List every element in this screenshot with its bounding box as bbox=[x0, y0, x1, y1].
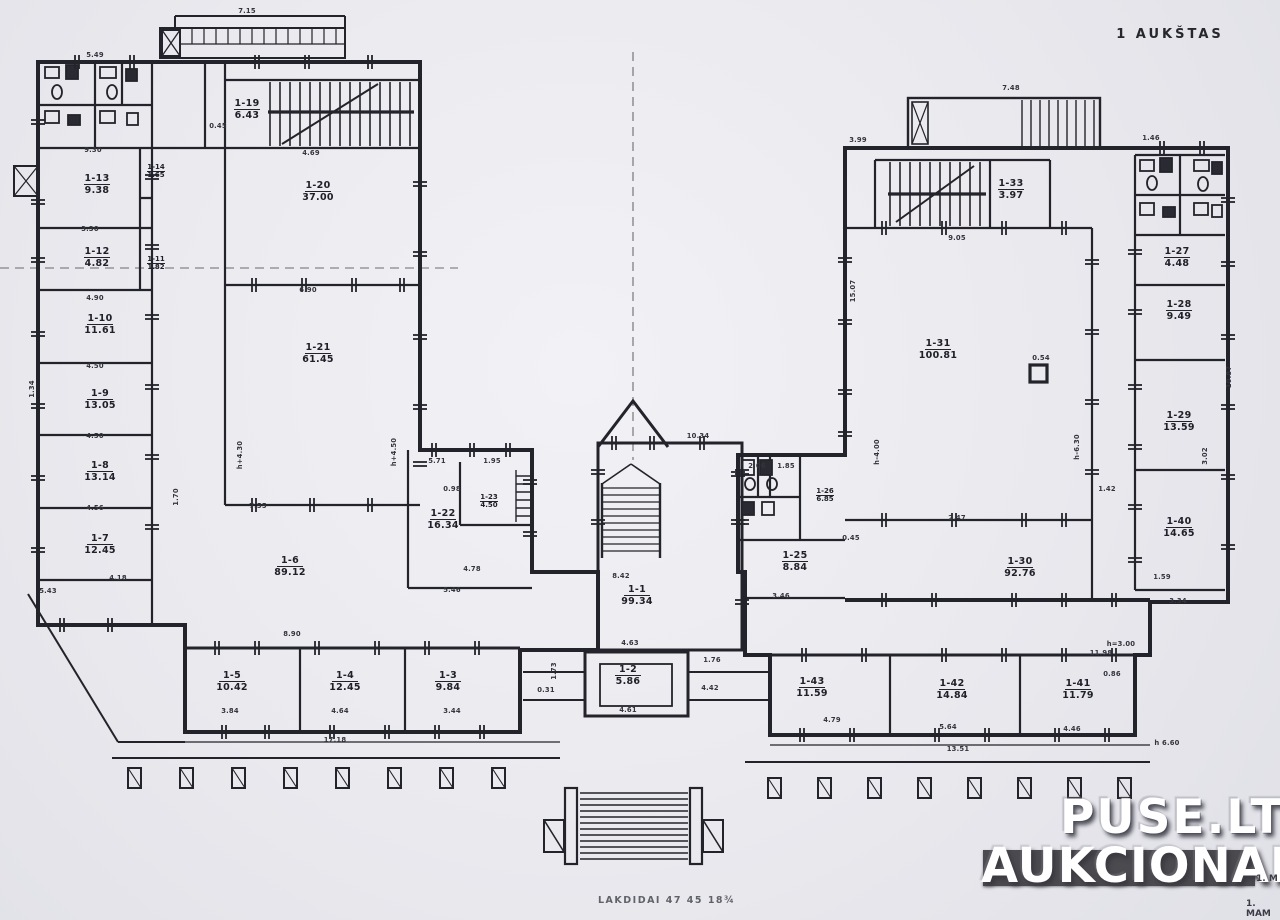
svg-text:37.00: 37.00 bbox=[302, 192, 334, 203]
svg-text:1-43: 1-43 bbox=[800, 676, 825, 687]
svg-text:1.65: 1.65 bbox=[147, 171, 164, 179]
hall-staircase bbox=[602, 464, 660, 558]
svg-text:1-9: 1-9 bbox=[91, 388, 109, 399]
dim-label: 15.07 bbox=[849, 280, 857, 303]
dim-label: 0.86 bbox=[1103, 670, 1121, 678]
svg-text:99.34: 99.34 bbox=[621, 596, 653, 607]
room-label: 1-412.45 bbox=[329, 670, 361, 693]
balcony-top-left bbox=[160, 16, 345, 58]
dim-label: h-6.30 bbox=[1073, 434, 1081, 460]
svg-text:1-5: 1-5 bbox=[223, 670, 241, 681]
dim-label: 1.46 bbox=[1142, 134, 1160, 142]
dim-label: h+4.50 bbox=[390, 438, 398, 467]
svg-text:1-7: 1-7 bbox=[91, 533, 109, 544]
svg-text:1-23: 1-23 bbox=[480, 493, 498, 501]
dim-label: 4.18 bbox=[109, 574, 127, 582]
dim-label: 13.51 bbox=[947, 745, 970, 753]
svg-text:1-11: 1-11 bbox=[147, 255, 165, 263]
floor-title: 1 AUKŠTAS bbox=[1116, 26, 1224, 42]
dim-label: 4.69 bbox=[302, 149, 320, 157]
dim-label: 1.73 bbox=[550, 662, 558, 680]
svg-text:11.61: 11.61 bbox=[84, 325, 116, 336]
dim-label: 5.49 bbox=[86, 51, 104, 59]
svg-text:1-6: 1-6 bbox=[281, 555, 299, 566]
svg-text:61.45: 61.45 bbox=[302, 354, 334, 365]
room-label: 1-111.82 bbox=[147, 255, 165, 271]
svg-text:12.45: 12.45 bbox=[84, 545, 116, 556]
svg-text:16.34: 16.34 bbox=[427, 520, 459, 531]
svg-text:89.12: 89.12 bbox=[274, 567, 306, 578]
svg-text:1-19: 1-19 bbox=[235, 98, 260, 109]
dim-label: 4.61 bbox=[619, 706, 637, 714]
floor-plan-svg: 1-196.431-2037.001-2161.451-139.381-141.… bbox=[0, 0, 1280, 920]
dim-label: 1.95 bbox=[483, 457, 501, 465]
room-label: 1-4311.59 bbox=[796, 676, 828, 699]
room-label: 1-2913.59 bbox=[1163, 410, 1195, 433]
dim-label: 10.34 bbox=[687, 432, 710, 440]
svg-text:11.79: 11.79 bbox=[1062, 690, 1094, 701]
dim-label: h+4.30 bbox=[236, 441, 244, 470]
watermark-aukcionai: AUKCIONAI bbox=[981, 838, 1280, 894]
dim-label: 9.05 bbox=[948, 234, 966, 242]
svg-text:6.85: 6.85 bbox=[816, 495, 833, 503]
svg-text:4.50: 4.50 bbox=[480, 501, 497, 509]
svg-text:1-4: 1-4 bbox=[336, 670, 354, 681]
ladder-room-1-23 bbox=[516, 470, 532, 522]
svg-text:1-26: 1-26 bbox=[816, 487, 834, 495]
dim-label: 4.50 bbox=[86, 362, 104, 370]
room-label: 1-258.84 bbox=[782, 550, 808, 573]
vestibule-walls bbox=[523, 652, 768, 716]
staircase-left-wing bbox=[268, 82, 414, 146]
dim-label: 3.02 bbox=[1201, 447, 1209, 465]
dim-label: h=3.00 bbox=[1107, 640, 1136, 648]
dim-label: 11.98 bbox=[1090, 649, 1113, 657]
room-label: 1-913.05 bbox=[84, 388, 116, 411]
dim-label: 7.48 bbox=[1002, 84, 1020, 92]
svg-text:4.82: 4.82 bbox=[85, 258, 110, 269]
footer-note: LAKDIDAI 47 45 18¾ bbox=[598, 895, 735, 906]
room-label: 1-141.65 bbox=[147, 163, 165, 179]
svg-text:1-29: 1-29 bbox=[1167, 410, 1192, 421]
dim-label: 1.70 bbox=[172, 488, 180, 506]
svg-text:1-21: 1-21 bbox=[306, 342, 331, 353]
dim-label: 3.30 bbox=[81, 225, 99, 233]
room-label: 1-196.43 bbox=[234, 98, 260, 121]
svg-text:13.05: 13.05 bbox=[84, 400, 116, 411]
entrance-bay bbox=[598, 401, 668, 447]
column-room-1-31 bbox=[1030, 365, 1047, 382]
svg-text:1-42: 1-42 bbox=[940, 678, 965, 689]
dim-label: 8.90 bbox=[283, 630, 301, 638]
svg-text:13.14: 13.14 bbox=[84, 472, 116, 483]
entrance-grand-stairs bbox=[544, 788, 723, 864]
room-label: 1-234.50 bbox=[480, 493, 498, 509]
dim-label: 1.34 bbox=[28, 380, 36, 398]
svg-text:8.84: 8.84 bbox=[783, 562, 808, 573]
room-label: 1-139.38 bbox=[84, 173, 110, 196]
svg-text:1-41: 1-41 bbox=[1066, 678, 1091, 689]
room-label: 1-289.49 bbox=[1166, 299, 1192, 322]
svg-text:1-27: 1-27 bbox=[1165, 246, 1190, 257]
svg-text:1-12: 1-12 bbox=[85, 246, 110, 257]
svg-text:12.45: 12.45 bbox=[329, 682, 361, 693]
dim-label: 17.18 bbox=[324, 736, 347, 744]
footer-fragment-1: 1. M bbox=[1256, 874, 1278, 884]
dim-label: 3.46 bbox=[772, 592, 790, 600]
dim-label: 2.47 bbox=[948, 514, 966, 522]
dim-label: 4.42 bbox=[701, 684, 719, 692]
room-label: 1-274.48 bbox=[1164, 246, 1190, 269]
svg-text:11.59: 11.59 bbox=[796, 688, 828, 699]
dimension-labels: 5.497.150.454.699.303.304.904.504.504.56… bbox=[28, 7, 1233, 753]
partition-walls bbox=[38, 62, 1225, 735]
svg-text:1-30: 1-30 bbox=[1008, 556, 1033, 567]
room-label: 1-2037.00 bbox=[302, 180, 334, 203]
room-labels: 1-196.431-2037.001-2161.451-139.381-141.… bbox=[84, 98, 1195, 701]
svg-text:9.84: 9.84 bbox=[436, 682, 461, 693]
sanitary-cluster-top-left bbox=[45, 65, 138, 125]
svg-text:1-22: 1-22 bbox=[431, 508, 456, 519]
svg-text:5.86: 5.86 bbox=[616, 676, 641, 687]
dim-label: 4.78 bbox=[463, 565, 481, 573]
dim-label: 2.06 bbox=[748, 462, 766, 470]
dim-label: 5.64 bbox=[939, 723, 957, 731]
svg-text:9.38: 9.38 bbox=[85, 185, 110, 196]
room-label: 1-25.86 bbox=[615, 664, 641, 687]
dim-label: 5.43 bbox=[39, 587, 57, 595]
dim-label: 3.99 bbox=[849, 136, 867, 144]
dim-label: 5.71 bbox=[428, 457, 446, 465]
dim-label: h-4.00 bbox=[873, 439, 881, 465]
svg-text:3.97: 3.97 bbox=[999, 190, 1024, 201]
svg-text:1-1: 1-1 bbox=[628, 584, 646, 595]
room-label: 1-3092.76 bbox=[1004, 556, 1036, 579]
room-label: 1-1011.61 bbox=[84, 313, 116, 336]
svg-text:1-31: 1-31 bbox=[926, 338, 951, 349]
svg-text:14.65: 14.65 bbox=[1163, 528, 1195, 539]
room-label: 1-813.14 bbox=[84, 460, 116, 483]
dim-label: 4.50 bbox=[86, 432, 104, 440]
dim-label: 0.45 bbox=[209, 122, 227, 130]
svg-text:1-33: 1-33 bbox=[999, 178, 1024, 189]
room-label: 1-712.45 bbox=[84, 533, 116, 556]
dim-label: 4.56 bbox=[86, 504, 104, 512]
annex-box-left bbox=[14, 166, 38, 196]
dim-label: 1.42 bbox=[1098, 485, 1116, 493]
room-label: 1-266.85 bbox=[816, 487, 834, 503]
room-label: 1-333.97 bbox=[998, 178, 1024, 201]
dim-label: 1.85 bbox=[777, 462, 795, 470]
svg-text:1.82: 1.82 bbox=[147, 263, 164, 271]
svg-text:92.76: 92.76 bbox=[1004, 568, 1036, 579]
dim-label: 8.42 bbox=[612, 572, 630, 580]
room-label: 1-199.34 bbox=[621, 584, 653, 607]
dim-label: h 6.60 bbox=[1154, 739, 1179, 747]
dim-label: 1.59 bbox=[1153, 573, 1171, 581]
room-label: 1-4014.65 bbox=[1163, 516, 1195, 539]
dim-label: 4.46 bbox=[1063, 725, 1081, 733]
svg-text:1-3: 1-3 bbox=[439, 670, 457, 681]
dim-label: 7.55 bbox=[249, 502, 267, 510]
dim-label: 3.44 bbox=[443, 707, 461, 715]
svg-text:1-14: 1-14 bbox=[147, 163, 165, 171]
dim-label: 0.45 bbox=[842, 534, 860, 542]
room-label: 1-4214.84 bbox=[936, 678, 968, 701]
dim-label: 7.15 bbox=[238, 7, 256, 15]
dim-label: 10.87 bbox=[1225, 366, 1233, 389]
dim-label: 4.63 bbox=[621, 639, 639, 647]
dim-label: 6.90 bbox=[299, 286, 317, 294]
svg-text:1-8: 1-8 bbox=[91, 460, 109, 471]
svg-text:6.43: 6.43 bbox=[235, 110, 260, 121]
room-label: 1-2216.34 bbox=[427, 508, 459, 531]
room-label: 1-689.12 bbox=[274, 555, 306, 578]
dim-label: 4.79 bbox=[823, 716, 841, 724]
svg-text:100.81: 100.81 bbox=[919, 350, 957, 361]
svg-text:1-10: 1-10 bbox=[88, 313, 113, 324]
svg-text:4.48: 4.48 bbox=[1165, 258, 1190, 269]
svg-text:1-2: 1-2 bbox=[619, 664, 637, 675]
room-label: 1-124.82 bbox=[84, 246, 110, 269]
svg-text:10.42: 10.42 bbox=[216, 682, 248, 693]
dim-label: 3.84 bbox=[221, 707, 239, 715]
porch-diagonal bbox=[28, 594, 185, 742]
dim-label: 3.34 bbox=[1169, 597, 1187, 605]
svg-text:1-25: 1-25 bbox=[783, 550, 808, 561]
footer-fragment-2: 1. MAM bbox=[1246, 899, 1280, 919]
svg-text:9.49: 9.49 bbox=[1167, 311, 1192, 322]
dim-label: 0.31 bbox=[537, 686, 555, 694]
svg-text:13.59: 13.59 bbox=[1163, 422, 1195, 433]
watermark-puse-lt: PUSE.LT bbox=[1060, 790, 1280, 845]
room-label: 1-39.84 bbox=[435, 670, 461, 693]
room-label: 1-2161.45 bbox=[302, 342, 334, 365]
dim-label: 9.30 bbox=[84, 146, 102, 154]
room-label: 1-510.42 bbox=[216, 670, 248, 693]
dim-label: 1.76 bbox=[703, 656, 721, 664]
dim-label: 4.64 bbox=[331, 707, 349, 715]
staircase-right-wing bbox=[888, 162, 986, 226]
room-label: 1-31100.81 bbox=[919, 338, 957, 361]
projection-top-right bbox=[908, 98, 1100, 148]
svg-text:14.84: 14.84 bbox=[936, 690, 968, 701]
room-label: 1-4111.79 bbox=[1062, 678, 1094, 701]
scanned-floor-plan: 1-196.431-2037.001-2161.451-139.381-141.… bbox=[0, 0, 1280, 920]
dim-label: 0.98 bbox=[443, 485, 461, 493]
svg-text:1-28: 1-28 bbox=[1167, 299, 1192, 310]
svg-text:1-40: 1-40 bbox=[1167, 516, 1192, 527]
dim-label: 4.90 bbox=[86, 294, 104, 302]
dim-label: 0.54 bbox=[1032, 354, 1050, 362]
svg-text:1-20: 1-20 bbox=[306, 180, 331, 191]
dim-label: 5.46 bbox=[443, 586, 461, 594]
svg-text:1-13: 1-13 bbox=[85, 173, 110, 184]
